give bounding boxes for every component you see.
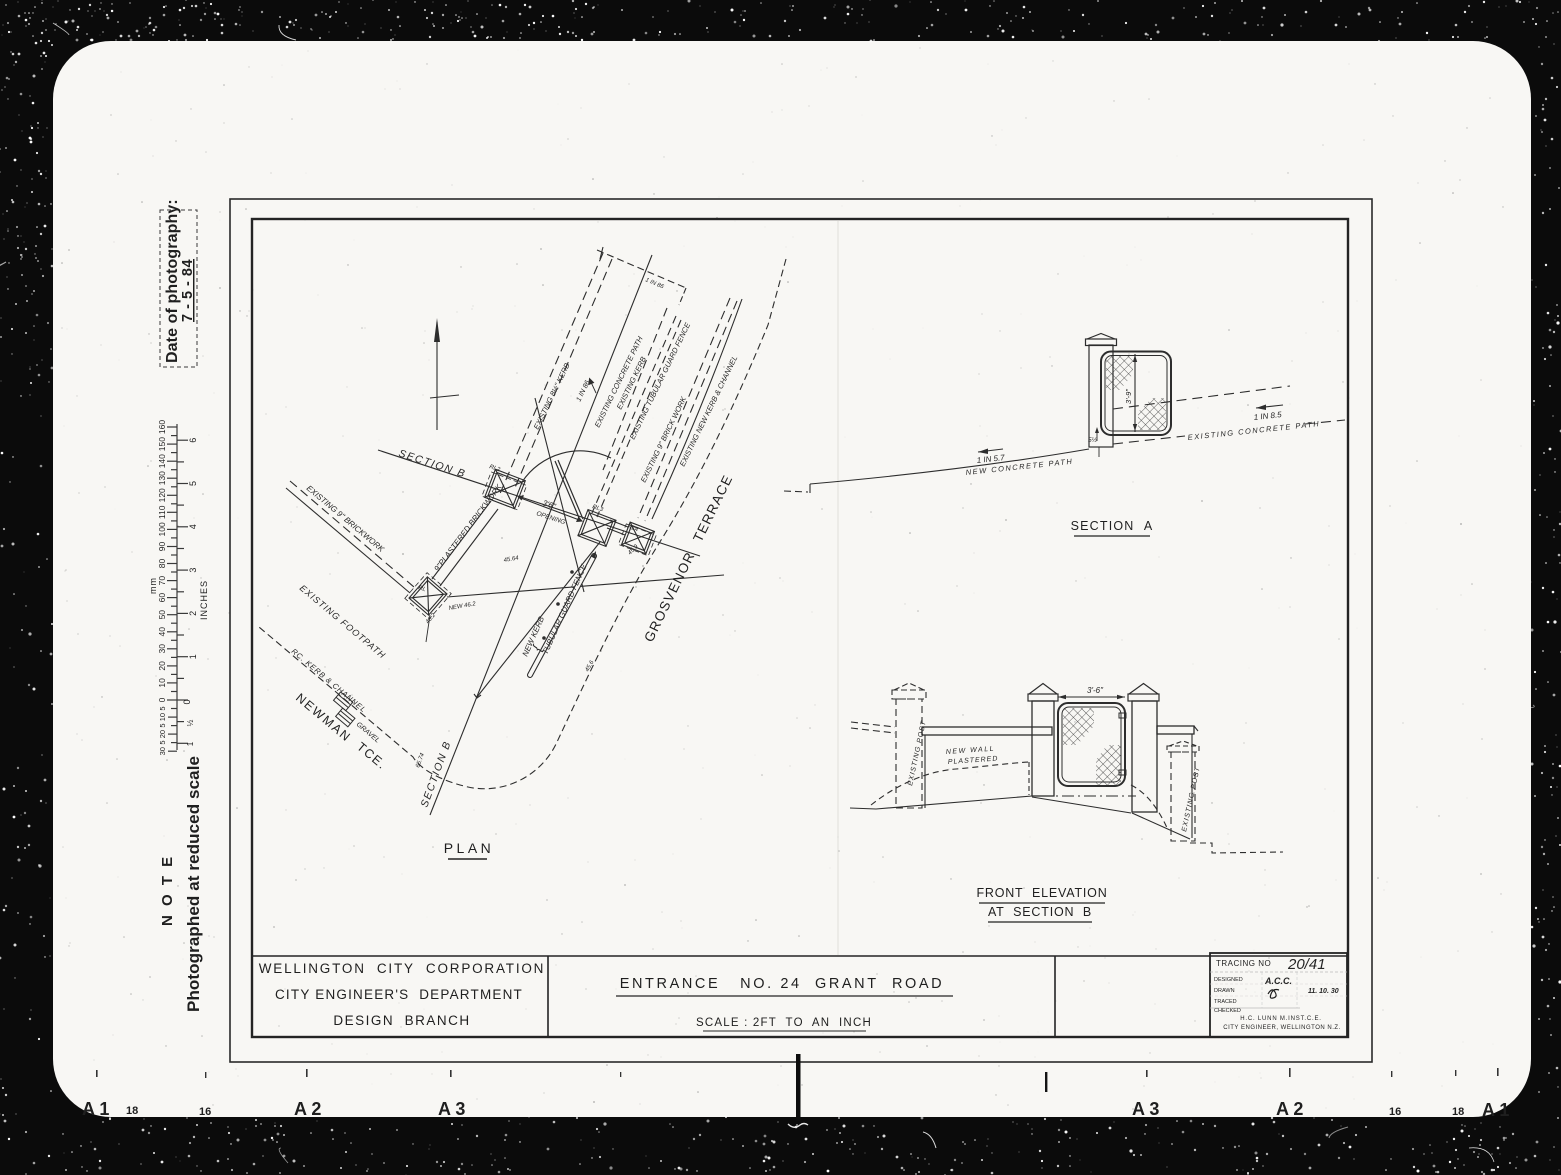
svg-text:A 3: A 3 [1132, 1099, 1159, 1119]
svg-text:CITY ENGINEER, WELLINGTON N.Z.: CITY ENGINEER, WELLINGTON N.Z. [1223, 1025, 1340, 1031]
svg-text:½: ½ [186, 719, 195, 726]
svg-text:TRACED: TRACED [1214, 999, 1237, 1005]
svg-text:30: 30 [158, 747, 167, 755]
svg-text:18: 18 [126, 1105, 138, 1117]
svg-text:Photographed at reduced scale: Photographed at reduced scale [184, 756, 203, 1012]
svg-text:20: 20 [157, 661, 167, 671]
svg-text:SECTION A: SECTION A [1071, 519, 1154, 533]
svg-text:5½: 5½ [1088, 436, 1098, 444]
svg-text:A 2: A 2 [294, 1099, 321, 1119]
svg-text:WELLINGTON CITY CORPORATION: WELLINGTON CITY CORPORATION [259, 961, 545, 976]
svg-text:1: 1 [186, 741, 195, 746]
svg-text:30: 30 [157, 644, 167, 654]
svg-text:140: 140 [157, 454, 167, 468]
svg-text:3'-6": 3'-6" [1087, 686, 1104, 695]
svg-text:H.C. LUNN M.INST.C.E.: H.C. LUNN M.INST.C.E. [1240, 1016, 1321, 1022]
svg-text:A 1: A 1 [1482, 1100, 1509, 1120]
svg-text:60: 60 [157, 593, 167, 603]
svg-text:0: 0 [157, 697, 167, 702]
svg-text:FRONT ELEVATION: FRONT ELEVATION [976, 886, 1107, 900]
svg-text:16: 16 [1389, 1106, 1401, 1118]
svg-text:DRAWN: DRAWN [1214, 988, 1235, 994]
svg-text:A 3: A 3 [438, 1099, 465, 1119]
svg-text:3'-9": 3'-9" [1124, 389, 1133, 404]
svg-text:TRACING NO: TRACING NO [1216, 959, 1271, 968]
svg-text:mm: mm [148, 577, 158, 594]
svg-text:CHECKED: CHECKED [1214, 1008, 1241, 1014]
svg-text:1: 1 [188, 654, 198, 659]
svg-text:6: 6 [188, 438, 198, 443]
svg-text:CITY ENGINEER'S DEPARTMENT: CITY ENGINEER'S DEPARTMENT [275, 987, 523, 1002]
svg-text:100: 100 [157, 522, 167, 536]
svg-text:PLAN: PLAN [444, 840, 495, 856]
svg-text:SCALE : 2FT TO AN INCH: SCALE : 2FT TO AN INCH [696, 1017, 872, 1029]
svg-text:110: 110 [157, 505, 167, 519]
svg-text:40: 40 [157, 627, 167, 637]
svg-text:150: 150 [157, 437, 167, 451]
svg-text:16: 16 [199, 1106, 211, 1118]
svg-text:10: 10 [158, 713, 167, 721]
svg-text:7 - 5 - 84: 7 - 5 - 84 [180, 259, 196, 322]
svg-text:80: 80 [157, 559, 167, 569]
svg-text:INCHES: INCHES [199, 580, 209, 620]
svg-text:ENTRANCE NO. 24 GRANT ROAD: ENTRANCE NO. 24 GRANT ROAD [620, 976, 945, 992]
svg-text:5: 5 [158, 724, 167, 728]
svg-text:120: 120 [157, 488, 167, 502]
svg-text:AT SECTION B: AT SECTION B [988, 905, 1092, 919]
svg-text:20/41: 20/41 [1287, 956, 1326, 973]
svg-text:DESIGNED: DESIGNED [1214, 977, 1243, 983]
svg-text:5: 5 [158, 706, 167, 710]
svg-text:A 1: A 1 [82, 1099, 109, 1119]
svg-text:90: 90 [157, 542, 167, 552]
svg-text:Date of photography:: Date of photography: [164, 199, 181, 363]
svg-text:18: 18 [1452, 1106, 1464, 1118]
svg-text:3: 3 [188, 568, 198, 573]
svg-text:4: 4 [188, 524, 198, 529]
svg-text:11. 10. 30: 11. 10. 30 [1308, 988, 1339, 995]
svg-text:50: 50 [157, 610, 167, 620]
svg-text:20: 20 [158, 730, 167, 738]
svg-text:5: 5 [158, 741, 167, 745]
svg-text:A.C.C.: A.C.C. [1264, 976, 1292, 986]
svg-text:DESIGN BRANCH: DESIGN BRANCH [333, 1013, 470, 1028]
svg-text:A 2: A 2 [1276, 1099, 1303, 1119]
svg-text:5: 5 [188, 481, 198, 486]
svg-text:0: 0 [182, 699, 192, 704]
svg-text:130: 130 [157, 471, 167, 485]
svg-text:N O T E: N O T E [159, 854, 176, 926]
svg-text:160: 160 [157, 420, 167, 434]
svg-text:10: 10 [157, 678, 167, 688]
svg-text:2: 2 [188, 611, 198, 616]
svg-text:70: 70 [157, 576, 167, 586]
